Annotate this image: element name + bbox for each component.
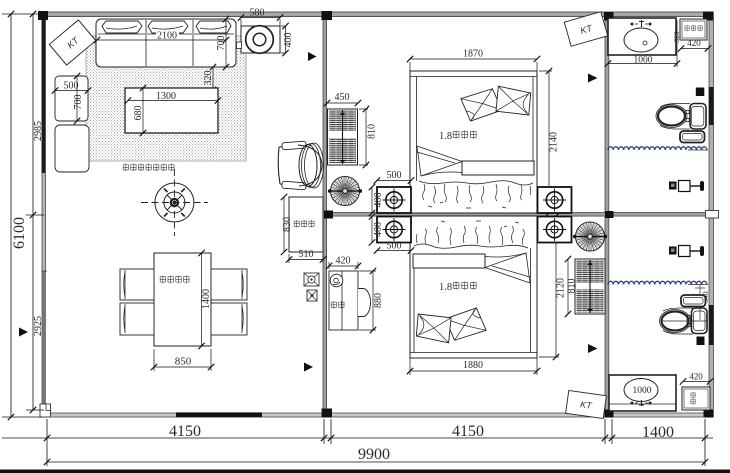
svg-text:320: 320 <box>672 31 681 43</box>
svg-text:2100: 2100 <box>157 31 177 42</box>
svg-text:2140: 2140 <box>549 132 560 152</box>
svg-text:400: 400 <box>373 193 384 208</box>
svg-text:2925: 2925 <box>33 316 44 336</box>
svg-text:850: 850 <box>175 356 192 368</box>
svg-text:1870: 1870 <box>463 49 483 60</box>
svg-text:2985: 2985 <box>33 121 44 141</box>
svg-text:420: 420 <box>336 256 351 267</box>
svg-text:1400: 1400 <box>642 424 674 441</box>
svg-text:2120: 2120 <box>556 278 567 298</box>
svg-text:680: 680 <box>133 106 144 121</box>
svg-text:810: 810 <box>367 124 378 139</box>
svg-text:1300: 1300 <box>156 91 176 102</box>
svg-text:700: 700 <box>73 95 84 110</box>
svg-text:320: 320 <box>203 71 214 86</box>
svg-text:1400: 1400 <box>201 289 212 309</box>
svg-text:1880: 1880 <box>463 360 483 371</box>
svg-text:420: 420 <box>689 372 703 382</box>
svg-text:1000: 1000 <box>634 56 653 66</box>
svg-text:4150: 4150 <box>169 423 201 440</box>
svg-text:400: 400 <box>373 222 384 237</box>
svg-text:580: 580 <box>250 8 265 19</box>
svg-text:6100: 6100 <box>11 217 28 249</box>
svg-text:500: 500 <box>387 241 402 252</box>
svg-text:420: 420 <box>687 38 701 48</box>
svg-text:1.8: 1.8 <box>439 282 452 293</box>
svg-text:400: 400 <box>283 33 294 48</box>
svg-text:810: 810 <box>567 279 578 294</box>
svg-text:700: 700 <box>216 36 227 51</box>
svg-text:500: 500 <box>387 170 402 181</box>
svg-text:500: 500 <box>64 81 79 92</box>
svg-text:1000: 1000 <box>633 386 652 396</box>
svg-text:9900: 9900 <box>358 446 390 463</box>
svg-text:450: 450 <box>335 92 350 103</box>
svg-text:1.8: 1.8 <box>439 131 452 142</box>
svg-text:880: 880 <box>373 293 384 308</box>
svg-text:830: 830 <box>282 217 293 232</box>
svg-text:4150: 4150 <box>452 423 484 440</box>
svg-text:510: 510 <box>299 249 314 260</box>
